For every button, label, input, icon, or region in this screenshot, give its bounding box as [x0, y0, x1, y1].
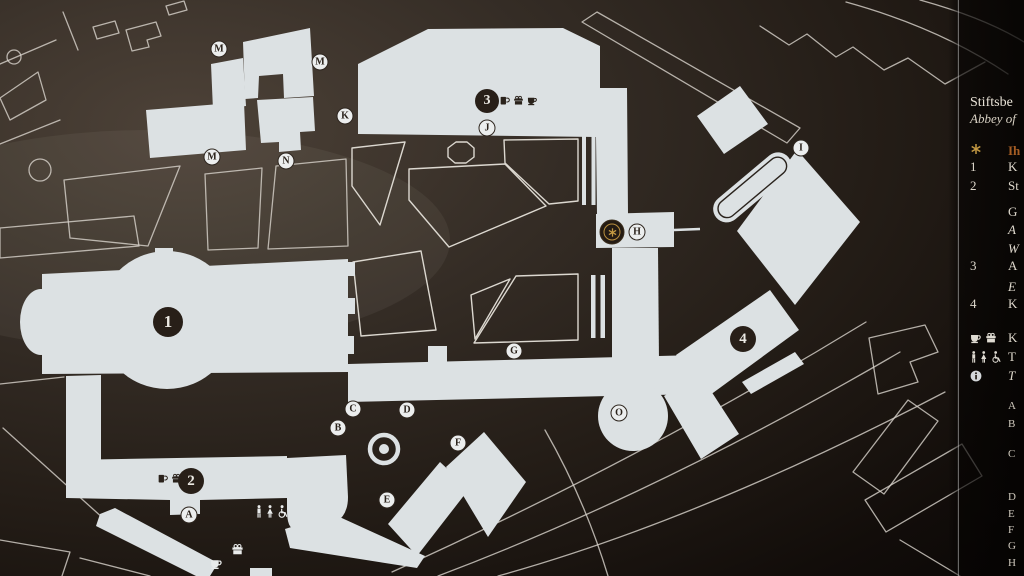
- legend-subline: E: [1008, 279, 1016, 295]
- northwest-building-mid: [211, 58, 246, 110]
- map-marker-3: 3: [475, 89, 499, 113]
- legend-subline: W: [1008, 241, 1019, 257]
- cup-icon: [210, 557, 223, 570]
- legend-facility: K: [970, 331, 1017, 345]
- cathedral-north-chapel: [155, 248, 173, 259]
- man-icon: [970, 351, 977, 363]
- legend-you-are-here: Ih: [970, 143, 1020, 158]
- legend-letter-E: E: [1008, 508, 1015, 520]
- legend-letter-A: A: [1008, 400, 1016, 412]
- rotunda: [598, 381, 668, 451]
- map-letter-G: G: [506, 343, 523, 360]
- info-icon: [970, 370, 982, 382]
- map-icon-group: [210, 557, 223, 570]
- legend-title: Stiftsbe: [970, 95, 1013, 111]
- map-letter-O: O: [611, 405, 628, 422]
- map-icon-group: [255, 505, 288, 518]
- man-icon: [255, 505, 263, 518]
- hedge-strip: [601, 120, 605, 205]
- abbey-map-sign: 1234MMKJMNIHGOCDBFEA Stiftsbe Abbey of I…: [0, 0, 1024, 576]
- fountain-center: [379, 444, 389, 454]
- legend-letter-H: H: [1008, 557, 1016, 569]
- legend-letter-D: D: [1008, 491, 1016, 503]
- legend-letter-C: C: [1008, 448, 1015, 460]
- cathedral-west-apse: [20, 289, 62, 355]
- gift-icon: [171, 473, 182, 484]
- hedge-strip: [582, 120, 586, 205]
- legend-subtitle: Abbey of: [970, 111, 1016, 127]
- map-letter-E: E: [379, 492, 396, 509]
- map-letter-N: N: [278, 153, 295, 170]
- gallery-annex: [428, 346, 447, 364]
- gift-icon: [513, 95, 524, 106]
- legend-item-2: 2St: [970, 179, 1019, 193]
- map-letter-I: I: [793, 140, 810, 157]
- map-marker-4: 4: [730, 326, 756, 352]
- cathedral-east-tower: [346, 262, 355, 276]
- legend-item-1: 1K: [970, 160, 1017, 174]
- cathedral-east-tower: [344, 336, 354, 354]
- cathedral-east-tower: [346, 298, 355, 314]
- legend-facility: T: [970, 369, 1015, 383]
- legend-subline: G: [1008, 204, 1017, 220]
- mug-icon: [499, 95, 510, 106]
- map-icon-group: [231, 543, 244, 556]
- map-letter-M: M: [312, 54, 329, 71]
- woman-icon: [980, 351, 987, 363]
- star-icon: [970, 143, 982, 155]
- wall-fragment: [250, 568, 272, 576]
- map-letter-J: J: [479, 120, 496, 137]
- legend-letter-B: B: [1008, 418, 1015, 430]
- map-icon-group: [499, 95, 538, 106]
- gift-icon: [985, 332, 997, 344]
- legend-edge-line: [958, 0, 959, 576]
- star-icon: [607, 227, 617, 237]
- woman-icon: [266, 505, 274, 518]
- you-are-here-marker: [600, 220, 625, 245]
- wheelchair-icon: [991, 351, 1001, 363]
- legend-facility: T: [970, 350, 1016, 364]
- legend-letter-G: G: [1008, 540, 1016, 552]
- hedge-strip: [591, 275, 596, 338]
- east-cloister: [612, 248, 659, 362]
- legend-item-4: 4K: [970, 297, 1017, 311]
- map-letter-M: M: [211, 41, 228, 58]
- map-letter-D: D: [399, 402, 416, 419]
- map-marker-1: 1: [153, 307, 183, 337]
- map-letter-K: K: [337, 108, 354, 125]
- hedge-strip: [601, 275, 606, 338]
- mug-icon: [157, 473, 168, 484]
- legend-letter-F: F: [1008, 524, 1014, 536]
- map-icon-group: [157, 473, 182, 484]
- hedge-strip: [592, 120, 596, 205]
- legend-panel: Stiftsbe Abbey of Ih 1K 2StGAW 3AE 4K K …: [948, 0, 1024, 576]
- map-letter-C: C: [345, 401, 362, 418]
- map-letter-M: M: [204, 149, 221, 166]
- gift-icon: [231, 543, 244, 556]
- passage-link: [674, 229, 700, 230]
- wheelchair-icon: [277, 505, 288, 518]
- cup-icon: [527, 95, 538, 106]
- site-plan-graphic: [0, 0, 1024, 576]
- legend-item-3: 3A: [970, 259, 1017, 273]
- cup-icon: [970, 332, 982, 344]
- map-letter-F: F: [450, 435, 467, 452]
- northwest-building-lower: [146, 102, 246, 158]
- map-letter-H: H: [629, 224, 646, 241]
- south-west-leg: [66, 375, 101, 464]
- map-letter-B: B: [330, 420, 347, 437]
- legend-subline: A: [1008, 222, 1016, 238]
- map-letter-A: A: [181, 507, 198, 524]
